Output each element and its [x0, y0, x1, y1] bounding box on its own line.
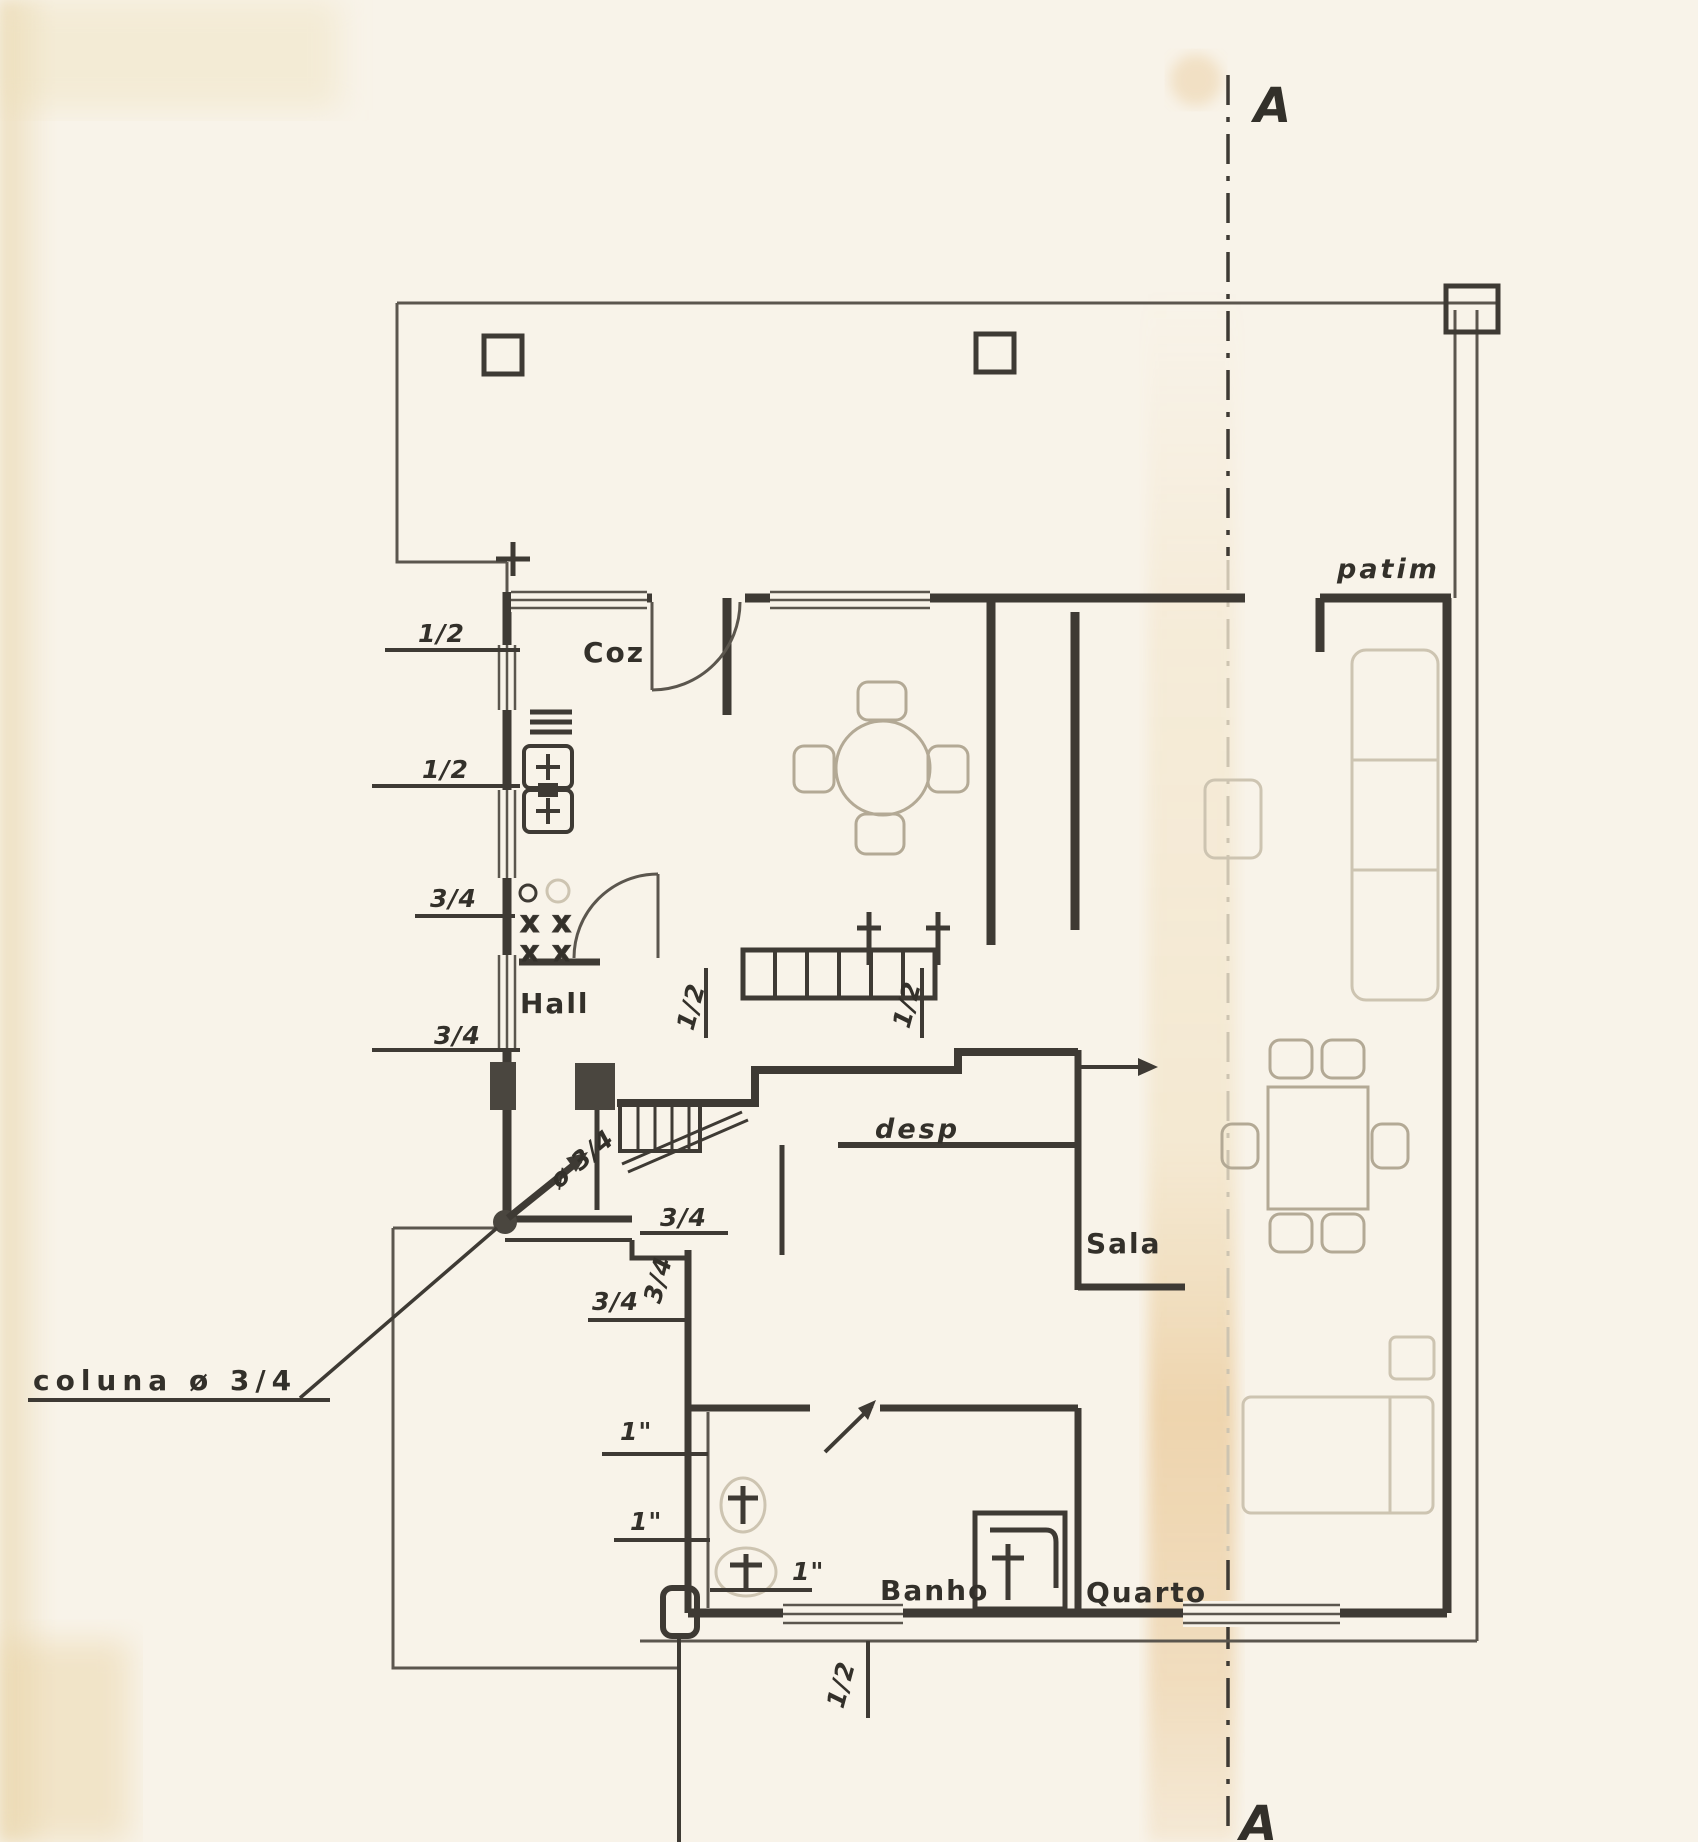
- pipe-label-bath-1: 1": [620, 1417, 652, 1446]
- svg-text:x: x: [552, 935, 571, 970]
- riser-cross-2: [926, 912, 950, 965]
- sofa: [1205, 650, 1438, 1000]
- label-column-riser: ø 3/4: [543, 1124, 620, 1195]
- label-column-note: coluna ø 3/4: [33, 1364, 297, 1397]
- pipe-label-stair-1: 3/4: [660, 1203, 707, 1232]
- nightstand: [1390, 1337, 1434, 1379]
- pipe-label-south: 1/2: [821, 1658, 861, 1711]
- leader-line: [300, 1228, 497, 1398]
- label-hall: Hall: [520, 987, 590, 1020]
- pipe-label-stair-3: 3/4: [592, 1287, 639, 1316]
- label-landing: patim: [1336, 554, 1440, 585]
- porch-left-edge: [397, 303, 507, 592]
- kitchen-north-window: [511, 586, 647, 612]
- kitchen-table: [794, 682, 968, 854]
- label-bathroom: Banho: [880, 1574, 989, 1607]
- riser-cross-1: [857, 912, 881, 965]
- corner-cross-mark: [496, 542, 530, 576]
- pipe-label-bath-2: 1": [630, 1507, 662, 1536]
- west-window-2: [495, 790, 519, 878]
- pipe-label-bath-3: 1": [792, 1557, 824, 1586]
- furniture: [794, 650, 1438, 1513]
- toilet-icon: [721, 1478, 765, 1532]
- wall-pier-block: [490, 1062, 516, 1110]
- pipe-ticks: [372, 650, 922, 1718]
- sw-connector: [632, 1240, 688, 1258]
- kitchen-fixtures: x x x x: [520, 712, 572, 970]
- sala-door-arrow: [1078, 1058, 1158, 1076]
- grill-icon: [530, 712, 572, 732]
- pipe-label-west-4: 3/4: [434, 1021, 481, 1050]
- stepped-partition: [617, 1052, 1078, 1103]
- section-marker-top: A: [1250, 78, 1291, 134]
- pipe-label-west-3: 3/4: [430, 884, 477, 913]
- pipe-label-stair-2: 3/4: [638, 1253, 678, 1306]
- stair-direction-lines: [622, 1112, 748, 1172]
- hall-kitchen-door-swing: [574, 874, 658, 958]
- pipe-label-west-1: 1/2: [418, 619, 465, 648]
- bath-door-arrow: [825, 1400, 876, 1452]
- section-marker-bottom: A: [1236, 1796, 1277, 1842]
- double-sink-icon: [524, 746, 572, 832]
- section-line-a: A A: [1228, 75, 1291, 1842]
- porch-column-middle: [976, 334, 1014, 372]
- label-kitchen: Coz: [583, 636, 645, 669]
- pipe-label-west-2: 1/2: [422, 755, 469, 784]
- label-pantry: desp: [875, 1114, 960, 1145]
- stove-icon: x x x x: [520, 880, 571, 970]
- porch-column-left: [484, 336, 522, 374]
- doors: [574, 602, 1158, 1636]
- floorplan-drawing: A A: [0, 0, 1698, 1842]
- label-bedroom: Quarto: [1086, 1576, 1207, 1609]
- scanned-floorplan-page: A A: [0, 0, 1698, 1842]
- stair-dark-block: [575, 1063, 615, 1110]
- svg-text:x: x: [520, 935, 539, 970]
- west-window-3: [495, 955, 519, 1048]
- dining-table: [1222, 1040, 1408, 1252]
- bed: [1243, 1337, 1434, 1513]
- scan-stains: [0, 0, 1236, 1842]
- label-living-room: Sala: [1086, 1227, 1162, 1260]
- dining-north-window: [770, 586, 930, 612]
- west-window-1: [495, 645, 519, 710]
